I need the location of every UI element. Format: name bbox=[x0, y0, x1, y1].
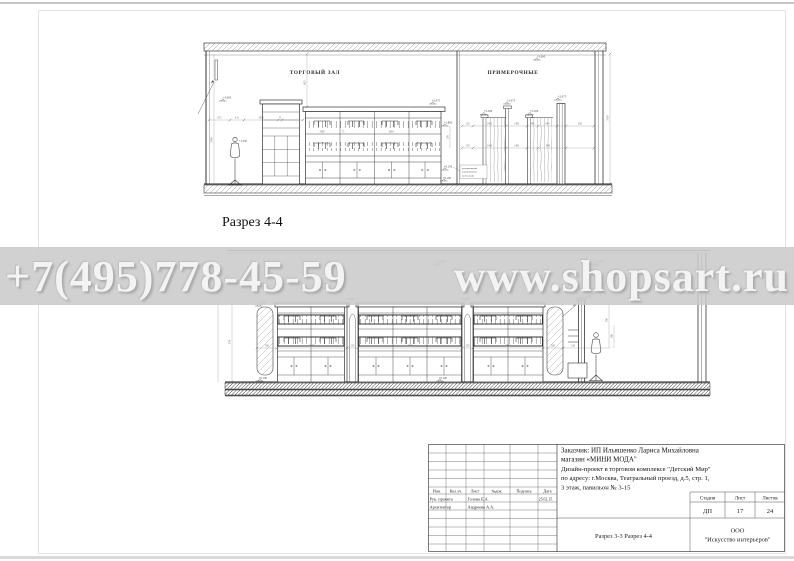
svg-text:Рук. проекта: Рук. проекта bbox=[430, 496, 453, 501]
floor-slab bbox=[204, 184, 612, 196]
svg-text:2900: 2900 bbox=[211, 137, 214, 143]
svg-text:Дизайн-проект в торговом ком: Дизайн-проект в торговом комплексе "Детс… bbox=[561, 466, 711, 473]
svg-text:24: 24 bbox=[767, 508, 774, 515]
light-fixture bbox=[198, 60, 218, 114]
svg-text:+2.075: +2.075 bbox=[558, 95, 567, 99]
svg-text:+2.075: +2.075 bbox=[432, 99, 441, 103]
svg-text:17: 17 bbox=[737, 508, 744, 515]
svg-text:керамогранит,: керамогранит, bbox=[462, 171, 478, 174]
hall-label: ТОРГОВЫЙ ЗАЛ bbox=[290, 68, 340, 76]
floor-slab bbox=[225, 382, 710, 396]
mannequin-icon bbox=[589, 333, 603, 381]
curtain-2 bbox=[532, 118, 552, 182]
svg-text:2050: 2050 bbox=[309, 345, 315, 348]
svg-text:1000: 1000 bbox=[388, 131, 394, 134]
section-4-4-drawing: ТОРГОВЫЙ ЗАЛ ПРИМЕРОЧНЫЕ bbox=[190, 38, 620, 210]
right-wall bbox=[595, 51, 603, 184]
svg-text:+2.500: +2.500 bbox=[484, 109, 493, 113]
svg-text:635: 635 bbox=[578, 123, 583, 126]
fitting-end-panel bbox=[557, 104, 565, 185]
svg-text:300: 300 bbox=[611, 333, 614, 338]
company-name-line1: ООО bbox=[731, 528, 745, 535]
svg-text:150: 150 bbox=[466, 123, 471, 126]
fitting-rooms bbox=[481, 104, 565, 185]
mannequin-icon bbox=[228, 137, 242, 185]
display-cabinet bbox=[260, 100, 302, 184]
svg-text:Заказчик: ИП Ильяшенко Лариса: Заказчик: ИП Ильяшенко Лариса Михайловна bbox=[561, 447, 700, 455]
left-wall bbox=[206, 51, 210, 184]
ceiling-slab bbox=[204, 43, 606, 55]
svg-text:№док.: №док. bbox=[491, 488, 502, 493]
svg-text:700: 700 bbox=[606, 317, 609, 322]
svg-text:+0.100: +0.100 bbox=[444, 165, 453, 169]
material-note: декоративный керамогранит, мебельный bbox=[453, 165, 487, 179]
svg-text:574: 574 bbox=[229, 339, 232, 344]
svg-text:528: 528 bbox=[571, 345, 576, 348]
svg-text:Стадия: Стадия bbox=[700, 497, 716, 502]
page-bottom-edge bbox=[0, 556, 794, 559]
svg-text:7530: 7530 bbox=[607, 115, 610, 121]
page-top-edge bbox=[0, 2, 794, 4]
svg-text:2050: 2050 bbox=[407, 345, 413, 348]
title-block: Изм. Кол.уч. Лист №док. Подпись Дата Рук… bbox=[428, 444, 785, 552]
svg-text:25.02.15.: 25.02.15. bbox=[539, 497, 553, 501]
mirror-panel-left bbox=[257, 307, 273, 375]
svg-text:+3.060: +3.060 bbox=[537, 55, 546, 59]
watermark-site: www.shopsart.ru bbox=[454, 251, 789, 302]
svg-text:по адресу: г.Москва, Театральн: по адресу: г.Москва, Театральный проезд,… bbox=[561, 475, 710, 482]
svg-text:+2.075: +2.075 bbox=[507, 99, 516, 103]
shelving-units bbox=[275, 303, 545, 382]
svg-text:+3.000: +3.000 bbox=[223, 96, 232, 100]
svg-text:декоративный: декоративный bbox=[462, 167, 478, 170]
company-name-line2: "Искусство интерьеров" bbox=[705, 537, 771, 544]
svg-text:1425: 1425 bbox=[304, 80, 307, 86]
svg-text:1462: 1462 bbox=[487, 123, 493, 126]
svg-text:250: 250 bbox=[351, 345, 356, 348]
svg-text:1300: 1300 bbox=[514, 123, 520, 126]
svg-text:+1.800: +1.800 bbox=[444, 121, 453, 125]
drawing-title: Разрез 3-3 Разрез 4-4 bbox=[595, 533, 653, 540]
svg-text:3 этаж, павильон № 3-15: 3 этаж, павильон № 3-15 bbox=[561, 485, 631, 492]
svg-text:250: 250 bbox=[447, 134, 450, 139]
svg-text:Изм.: Изм. bbox=[433, 488, 441, 493]
project-info: Заказчик: ИП Ильяшенко Лариса Михайловна… bbox=[561, 447, 711, 492]
svg-text:250: 250 bbox=[466, 345, 471, 348]
svg-text:1000: 1000 bbox=[258, 117, 264, 120]
svg-text:Листов: Листов bbox=[762, 497, 778, 502]
svg-text:ДП: ДП bbox=[703, 508, 712, 515]
svg-text:1000: 1000 bbox=[319, 131, 325, 134]
watermark-phone: +7(495)778-45-59 bbox=[5, 251, 347, 302]
svg-text:Голова Е.А.: Голова Е.А. bbox=[468, 496, 489, 501]
wall-shelves bbox=[568, 330, 578, 342]
svg-text:+1.350: +1.350 bbox=[239, 140, 247, 143]
curtain-1 bbox=[488, 118, 505, 182]
revision-grid-labels: Изм. Кол.уч. Лист №док. Подпись Дата Рук… bbox=[430, 488, 554, 509]
svg-text:магазин «МИНИ МОДА": магазин «МИНИ МОДА" bbox=[561, 456, 637, 464]
svg-text:675: 675 bbox=[218, 117, 223, 120]
fitting-label: ПРИМЕРОЧНЫЕ bbox=[488, 70, 539, 76]
svg-text:Лист: Лист bbox=[735, 497, 746, 502]
svg-text:+0.100: +0.100 bbox=[443, 177, 451, 180]
svg-text:2050: 2050 bbox=[505, 345, 511, 348]
svg-text:415: 415 bbox=[235, 117, 240, 120]
svg-text:+2.500: +2.500 bbox=[530, 109, 539, 113]
wall-shelving-unit bbox=[303, 107, 445, 184]
svg-text:Андреева А.А.: Андреева А.А. bbox=[468, 504, 495, 509]
svg-text:Кол.уч.: Кол.уч. bbox=[450, 488, 463, 493]
watermark-banner: +7(495)778-45-59 www.shopsart.ru bbox=[0, 247, 794, 305]
stage-table-text: Стадия Лист Листов ДП 17 24 Разрез 3-3 Р… bbox=[595, 497, 778, 544]
section-4-4-label: Разрез 4-4 bbox=[222, 215, 283, 231]
fitting-partition-wall bbox=[457, 51, 460, 184]
drawing-sheet: ТОРГОВЫЙ ЗАЛ ПРИМЕРОЧНЫЕ bbox=[0, 0, 794, 561]
svg-text:+0.100: +0.100 bbox=[439, 377, 447, 380]
svg-text:Подпись: Подпись bbox=[516, 488, 531, 493]
svg-text:мебельный: мебельный bbox=[462, 174, 474, 177]
svg-text:+0.100: +0.100 bbox=[259, 377, 267, 380]
svg-text:Архитектор: Архитектор bbox=[430, 504, 452, 509]
svg-text:1462: 1462 bbox=[487, 145, 493, 148]
svg-text:Дата: Дата bbox=[543, 488, 551, 493]
svg-text:1300: 1300 bbox=[514, 145, 520, 148]
mirror-panel-right bbox=[547, 307, 563, 375]
svg-text:Лист: Лист bbox=[471, 488, 480, 493]
podium-box bbox=[568, 363, 587, 378]
svg-text:150: 150 bbox=[466, 145, 471, 148]
